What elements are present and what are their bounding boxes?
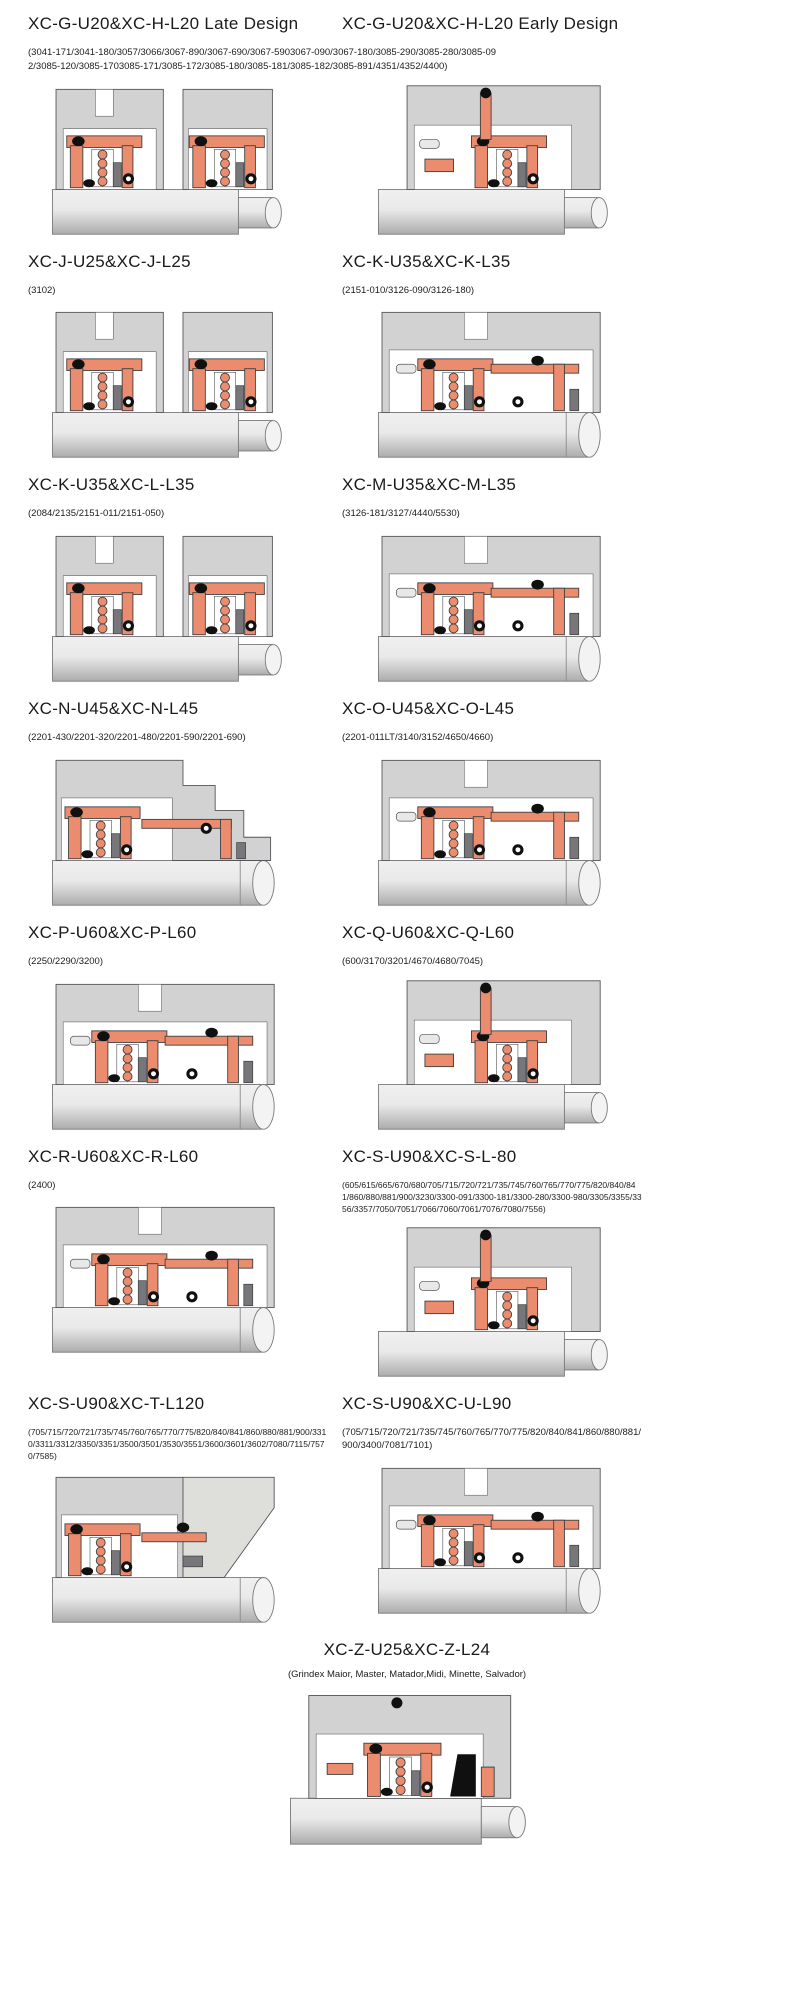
section-title: XC-M-U35&XC-M-L35 — [342, 475, 786, 495]
section-title: XC-K-U35&XC-L-L35 — [28, 475, 342, 495]
catalog-row: XC-N-U45&XC-N-L45 (2201-430/2201-320/220… — [28, 699, 786, 907]
section-title: XC-S-U90&XC-S-L-80 — [342, 1147, 786, 1167]
section-title: XC-G-U20&XC-H-L20 Late Design — [28, 14, 342, 34]
seal-cross-section-diagram — [28, 307, 304, 459]
seal-cross-section-diagram — [342, 531, 642, 683]
part-numbers: (600/3170/3201/4670/4680/7045) — [342, 955, 642, 969]
seal-section — [28, 84, 342, 236]
seal-section: XC-Q-U60&XC-Q-L60 (600/3170/3201/4670/46… — [342, 923, 786, 1131]
catalog-row: XC-J-U25&XC-J-L25 (3102) XC-K-U35&XC-K-L… — [28, 252, 786, 460]
catalog-row: XC-R-U60&XC-R-L60 (2400) XC-S-U90&XC-S-L… — [28, 1147, 786, 1378]
seal-section: XC-J-U25&XC-J-L25 (3102) — [28, 252, 342, 460]
part-numbers: (605/615/665/670/680/705/715/720/721/735… — [342, 1179, 642, 1216]
section-title: XC-N-U45&XC-N-L45 — [28, 699, 342, 719]
part-numbers: (705/715/720/721/735/745/760/765/770/775… — [28, 1426, 328, 1463]
part-numbers: (705/715/720/721/735/745/760/765/770/775… — [342, 1426, 642, 1454]
seal-section: XC-S-U90&XC-U-L90 (705/715/720/721/735/7… — [342, 1394, 786, 1616]
seal-section: XC-R-U60&XC-R-L60 (2400) — [28, 1147, 342, 1355]
seal-section: XC-N-U45&XC-N-L45 (2201-430/2201-320/220… — [28, 699, 342, 907]
seal-cross-section-diagram — [342, 1226, 642, 1378]
seal-section: XC-M-U35&XC-M-L35 (3126-181/3127/4440/55… — [342, 475, 786, 683]
seal-section-bottom: XC-Z-U25&XC-Z-L24 (Grindex Maior, Master… — [28, 1640, 786, 1846]
section-title: XC-P-U60&XC-P-L60 — [28, 923, 342, 943]
seal-cross-section-diagram — [342, 307, 642, 459]
seal-cross-section-diagram — [28, 1202, 304, 1354]
seal-cross-section-diagram — [342, 755, 642, 907]
seal-cross-section-diagram — [264, 1690, 550, 1846]
part-numbers: (Grindex Maior, Master, Matador,Midi, Mi… — [288, 1668, 526, 1682]
section-title: XC-S-U90&XC-T-L120 — [28, 1394, 342, 1414]
seal-cross-section-diagram — [28, 755, 304, 907]
part-numbers: (2201-011LT/3140/3152/4650/4660) — [342, 731, 642, 745]
part-numbers: (2084/2135/2151-011/2151-050) — [28, 507, 328, 521]
part-numbers: (2201-430/2201-320/2201-480/2201-590/220… — [28, 731, 328, 745]
section-title: XC-S-U90&XC-U-L90 — [342, 1394, 786, 1414]
seal-cross-section-diagram — [342, 1463, 642, 1615]
part-numbers: (3126-181/3127/4440/5530) — [342, 507, 642, 521]
seal-cross-section-diagram — [342, 84, 642, 236]
part-numbers: (3102) — [28, 284, 328, 298]
seal-cross-section-diagram — [28, 1472, 304, 1624]
seal-cross-section-diagram — [342, 979, 642, 1131]
section-title: XC-O-U45&XC-O-L45 — [342, 699, 786, 719]
catalog-row: XC-K-U35&XC-L-L35 (2084/2135/2151-011/21… — [28, 475, 786, 683]
seal-section — [342, 84, 786, 236]
seal-cross-section-diagram — [28, 979, 304, 1131]
catalog-row: XC-G-U20&XC-H-L20 Late Design XC-G-U20&X… — [28, 14, 786, 236]
catalog-row: XC-P-U60&XC-P-L60 (2250/2290/3200) XC-Q-… — [28, 923, 786, 1131]
seal-cross-section-diagram — [28, 84, 304, 236]
section-title: XC-K-U35&XC-K-L35 — [342, 252, 786, 272]
seal-section: XC-O-U45&XC-O-L45 (2201-011LT/3140/3152/… — [342, 699, 786, 907]
part-numbers: (3041-171/3041-180/3057/3066/3067-890/30… — [28, 46, 498, 74]
seal-section: XC-K-U35&XC-L-L35 (2084/2135/2151-011/21… — [28, 475, 342, 683]
section-title: XC-R-U60&XC-R-L60 — [28, 1147, 342, 1167]
catalog-row: XC-S-U90&XC-T-L120 (705/715/720/721/735/… — [28, 1394, 786, 1625]
section-title: XC-J-U25&XC-J-L25 — [28, 252, 342, 272]
seal-section: XC-S-U90&XC-S-L-80 (605/615/665/670/680/… — [342, 1147, 786, 1378]
part-numbers: (2151-010/3126-090/3126-180) — [342, 284, 642, 298]
seal-section: XC-P-U60&XC-P-L60 (2250/2290/3200) — [28, 923, 342, 1131]
section-title: XC-Q-U60&XC-Q-L60 — [342, 923, 786, 943]
part-numbers: (2250/2290/3200) — [28, 955, 328, 969]
catalog-page: XC-G-U20&XC-H-L20 Late Design XC-G-U20&X… — [0, 0, 796, 1846]
seal-section: XC-K-U35&XC-K-L35 (2151-010/3126-090/312… — [342, 252, 786, 460]
seal-cross-section-diagram — [28, 531, 304, 683]
seal-section: XC-S-U90&XC-T-L120 (705/715/720/721/735/… — [28, 1394, 342, 1625]
section-title: XC-Z-U25&XC-Z-L24 — [324, 1640, 491, 1660]
section-title: XC-G-U20&XC-H-L20 Early Design — [342, 14, 786, 34]
part-numbers: (2400) — [28, 1179, 328, 1193]
